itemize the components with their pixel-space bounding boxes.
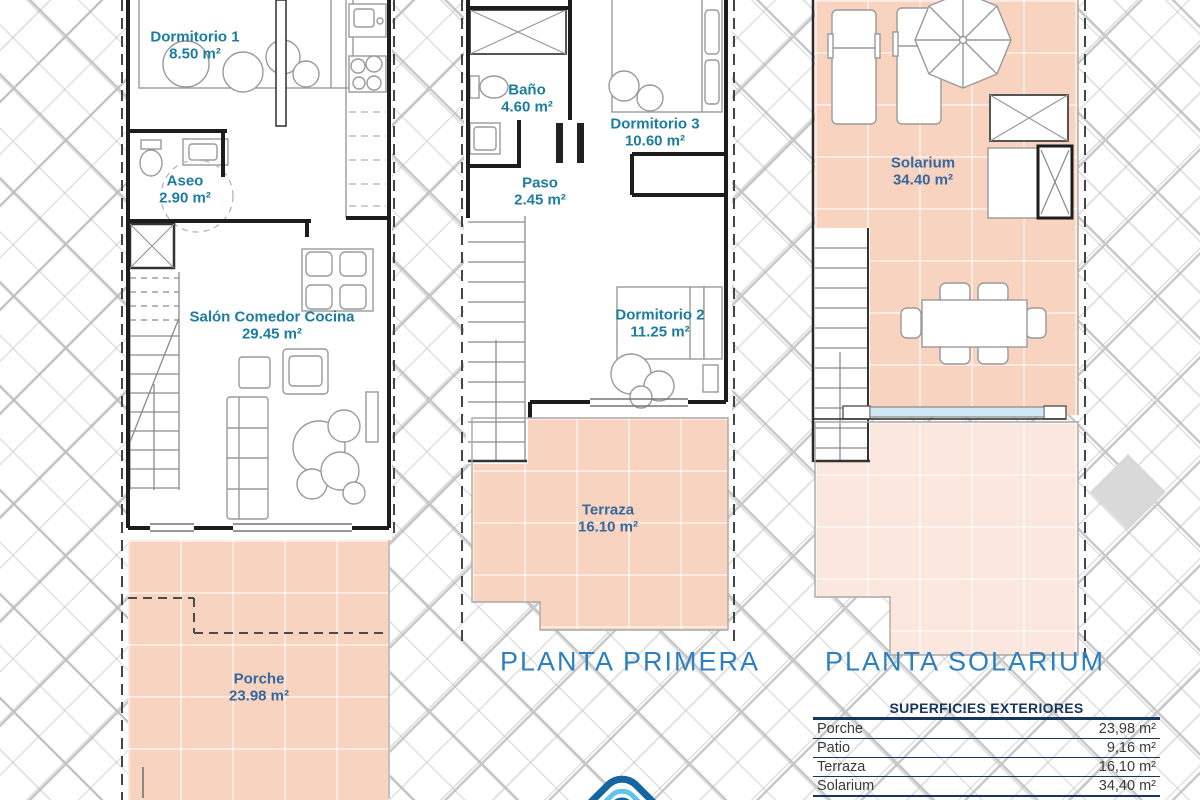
table-row: Patio 9,16 m² <box>813 739 1160 758</box>
room-area: 2.90 m² <box>159 190 211 207</box>
row-value: 23,98 m² <box>1099 721 1156 737</box>
solarium-tiles <box>815 0 1078 415</box>
room-area: 4.60 m² <box>501 99 553 116</box>
room-label-dormitorio-1: Dormitorio 1 8.50 m² <box>150 30 239 63</box>
row-value: 9,16 m² <box>1107 740 1156 756</box>
room-label-paso: Paso 2.45 m² <box>514 176 566 209</box>
room-label-dormitorio-2: Dormitorio 2 11.25 m² <box>615 308 704 341</box>
room-label-terraza: Terraza 16.10 m² <box>578 503 638 536</box>
row-label: Terraza <box>817 759 865 775</box>
room-label-aseo: Aseo 2.90 m² <box>159 174 211 207</box>
room-name: Salón Comedor Cocina <box>189 310 354 327</box>
room-name: Terraza <box>578 503 638 520</box>
room-label-porche: Porche 23.98 m² <box>229 672 289 705</box>
plan-title-planta-solarium: PLANTA SOLARIUM <box>825 647 1105 678</box>
row-value: 34,40 m² <box>1099 778 1156 794</box>
room-label-solarium: Solarium 34.40 m² <box>891 156 955 189</box>
room-name: Paso <box>514 176 566 193</box>
room-name: Dormitorio 3 <box>610 117 699 134</box>
room-area: 11.25 m² <box>615 324 704 341</box>
row-label: Solarium <box>817 778 874 794</box>
room-area: 10.60 m² <box>610 133 699 150</box>
room-area: 2.45 m² <box>514 192 566 209</box>
room-name: Dormitorio 1 <box>150 30 239 47</box>
room-area: 34.40 m² <box>891 172 955 189</box>
table-row: Terraza 16,10 m² <box>813 758 1160 777</box>
room-area: 16.10 m² <box>578 519 638 536</box>
first-floor-interior <box>464 0 732 418</box>
exterior-surfaces-table: SUPERFICIES EXTERIORES Porche 23,98 m² P… <box>813 699 1160 797</box>
row-label: Patio <box>817 740 850 756</box>
room-name: Dormitorio 2 <box>615 308 704 325</box>
room-name: Solarium <box>891 156 955 173</box>
room-label-bano: Baño 4.60 m² <box>501 83 553 116</box>
room-name: Baño <box>501 83 553 100</box>
room-area: 29.45 m² <box>189 326 354 343</box>
room-area: 23.98 m² <box>229 688 289 705</box>
table-row: Porche 23,98 m² <box>813 720 1160 739</box>
room-label-dormitorio-3: Dormitorio 3 10.60 m² <box>610 117 699 150</box>
table-title: SUPERFICIES EXTERIORES <box>813 699 1160 720</box>
room-area: 8.50 m² <box>150 46 239 63</box>
row-value: 16,10 m² <box>1099 759 1156 775</box>
room-name: Aseo <box>159 174 211 191</box>
table-row: Solarium 34,40 m² <box>813 777 1160 797</box>
plan-title-planta-primera: PLANTA PRIMERA <box>500 647 760 678</box>
ground-floor-interior <box>126 0 392 540</box>
room-label-salon-comedor-cocina: Salón Comedor Cocina 29.45 m² <box>189 310 354 343</box>
room-name: Porche <box>229 672 289 689</box>
row-label: Porche <box>817 721 863 737</box>
floorplan-sheet: Dormitorio 1 8.50 m² Aseo 2.90 m² Salón … <box>0 0 1200 800</box>
